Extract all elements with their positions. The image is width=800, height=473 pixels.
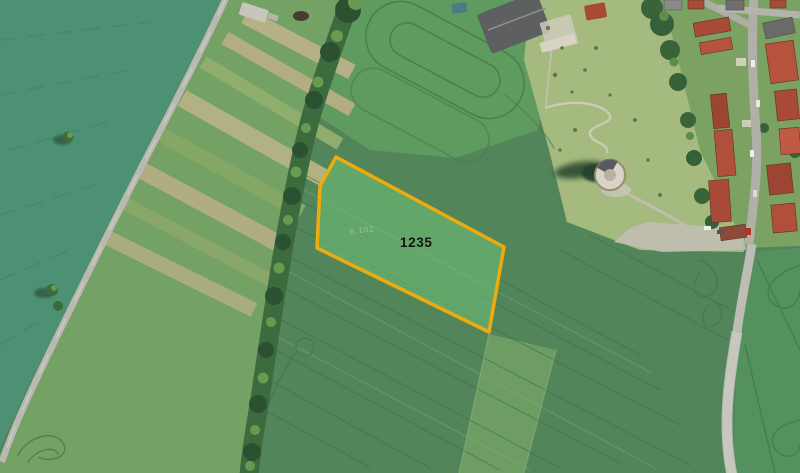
house-roof (779, 127, 800, 155)
house-roof (770, 0, 786, 8)
orthophoto-canvas: 6.102 1235 (0, 0, 800, 473)
house-roof (709, 179, 732, 222)
house-roof (771, 203, 797, 233)
house-roof (765, 40, 798, 84)
parcel-number-label: 1235 (400, 235, 432, 250)
house-roof (664, 0, 682, 10)
house-roof (726, 0, 744, 10)
shed-roof (451, 2, 467, 14)
house-roof (688, 0, 704, 9)
house-roof (766, 163, 793, 195)
house-roof (774, 89, 799, 121)
house-roof (714, 129, 736, 176)
house-roof (710, 93, 729, 128)
aerial-cadastre-map: 6.102 1235 (0, 0, 800, 473)
